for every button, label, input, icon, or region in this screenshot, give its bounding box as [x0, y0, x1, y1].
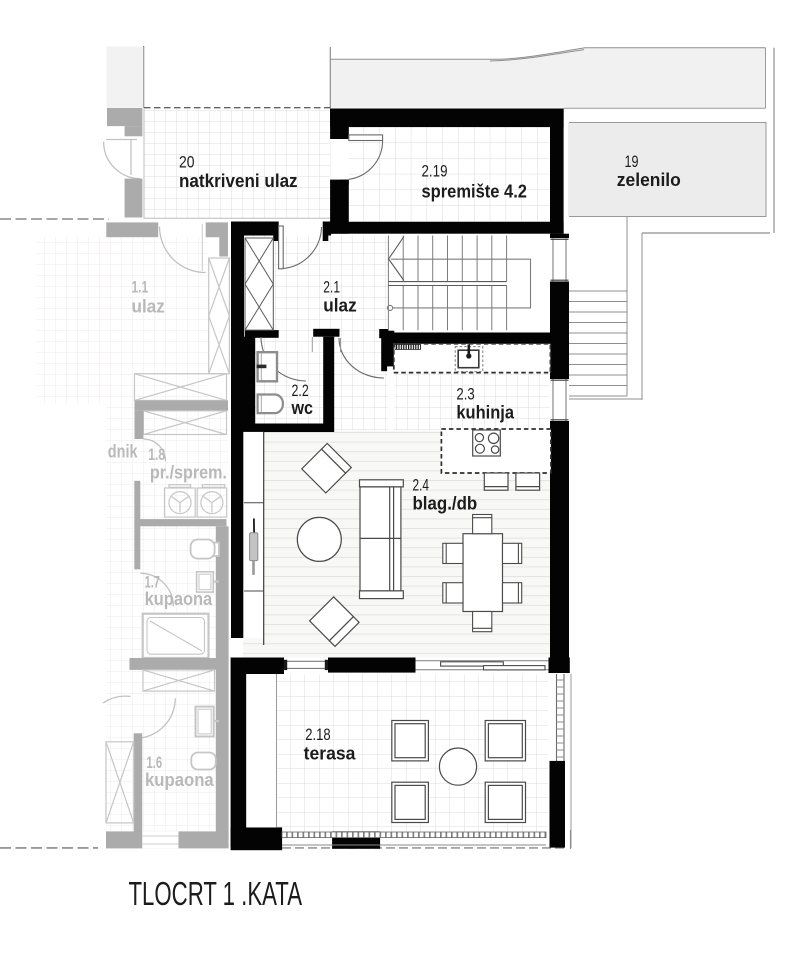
svg-text:1.8: 1.8 [148, 445, 165, 464]
svg-text:kupaona: kupaona [145, 589, 214, 609]
svg-text:natkriveni ulaz: natkriveni ulaz [179, 171, 298, 191]
svg-text:zelenilo: zelenilo [617, 170, 681, 190]
svg-text:ulaz: ulaz [323, 296, 356, 316]
svg-text:kupaona: kupaona [145, 770, 215, 790]
svg-text:1.1: 1.1 [132, 278, 149, 297]
svg-text:19: 19 [625, 152, 639, 171]
svg-text:kuhinja: kuhinja [456, 403, 514, 423]
svg-text:terasa: terasa [304, 744, 357, 764]
svg-text:2.19: 2.19 [422, 162, 448, 181]
svg-text:2.1: 2.1 [323, 278, 340, 297]
svg-text:ulaz: ulaz [132, 297, 165, 317]
svg-text:dnik: dnik [108, 442, 138, 462]
svg-text:2.4: 2.4 [413, 476, 430, 495]
svg-text:blag./db: blag./db [413, 494, 478, 514]
svg-text:20: 20 [179, 153, 195, 172]
svg-text:2.3: 2.3 [456, 385, 474, 404]
svg-text:wc: wc [291, 398, 313, 418]
svg-text:spremište 4.2: spremište 4.2 [422, 182, 528, 202]
svg-text:pr./sprem.: pr./sprem. [150, 463, 227, 483]
svg-text:TLOCRT 1 .KATA: TLOCRT 1 .KATA [129, 876, 303, 913]
svg-text:2.18: 2.18 [305, 725, 330, 744]
